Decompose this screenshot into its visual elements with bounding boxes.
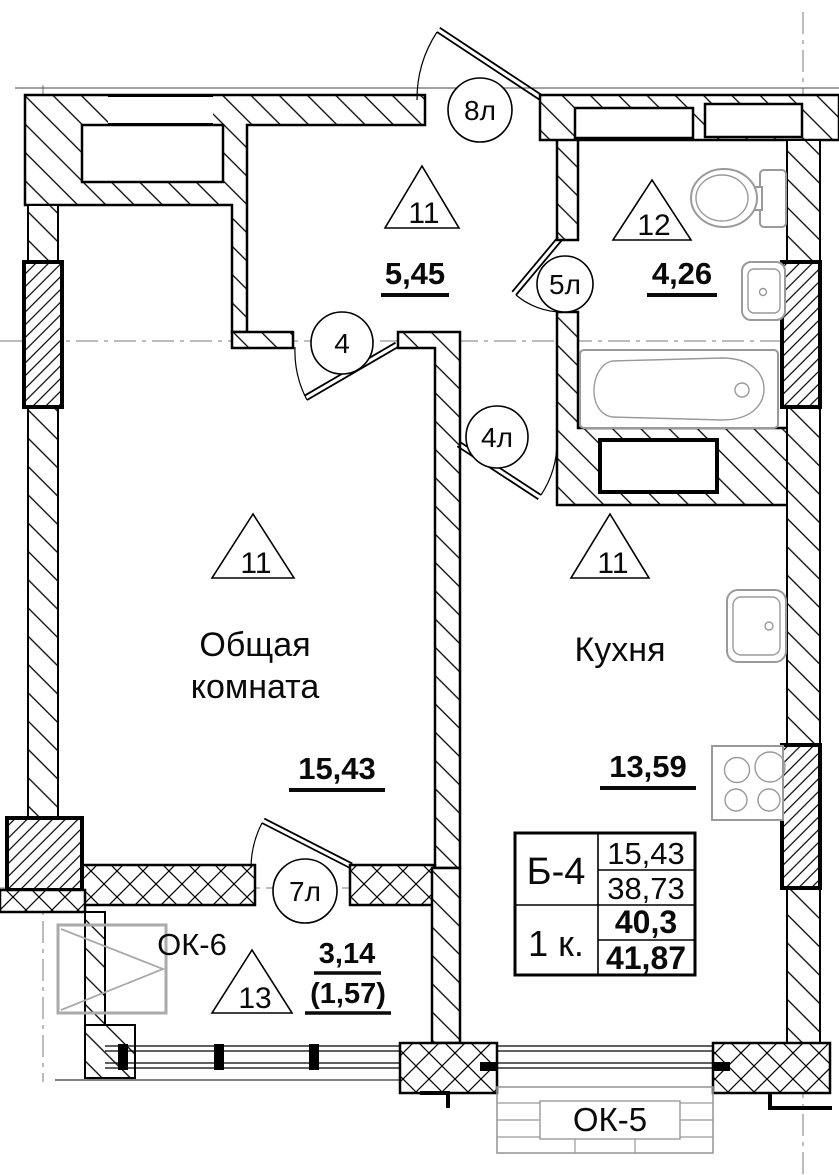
living-room-area: 15,43 [298,751,376,786]
wall-opening-top [108,97,213,124]
wall-step-bottom-left [420,1093,448,1108]
wall-bottom-right-of-door [350,865,435,905]
wall-loggia-kitchen [432,868,460,1043]
vent-shaft-niche [600,440,717,492]
zone-number-living: 11 [240,547,271,580]
column-right-lower [782,745,820,888]
walls [0,95,839,1108]
kitchen-sink [727,590,786,662]
table-living-area: 15,43 [607,836,685,871]
living-room-name-line2: комната [191,668,320,706]
kitchen-area: 13,59 [609,749,687,784]
loggia-area-coeff: (1,57) [310,978,386,1010]
door-label-kitchen: 4л [481,422,513,453]
floor-plan: 8л 4 4л 5л 7л 11 12 11 11 13 5,45 4,26 О… [0,0,839,1175]
apartment-info-table: Б-4 1 к. 15,43 38,73 40,3 41,87 [515,833,695,976]
table-sum-area: 38,73 [607,871,685,906]
loggia-area: 3,14 [319,938,375,970]
window-end-bar [713,1062,730,1071]
wall-central [398,332,460,868]
hall-area: 5,45 [385,256,445,291]
living-room-name-line1: Общая [199,626,310,664]
wall-below-column [0,890,85,912]
loggia-window-label: ОК-6 [157,927,227,962]
wall-step-bottom-right [770,1093,832,1108]
wall-living-door-left [232,332,293,348]
bathroom-sink [742,262,785,320]
wall-niche-top-right-2 [705,104,802,137]
column-bottom-left [7,818,82,890]
zone-number-loggia: 13 [238,982,271,1015]
wall-bottom-left-of-door [70,865,255,905]
stove [712,746,785,820]
column-left-upper [24,262,62,407]
toilet [691,169,786,227]
glazing-mullion [214,1044,224,1070]
wall-kitchen-window-right [713,1043,830,1093]
bathtub [580,350,778,428]
loggia-window-symbol [58,925,166,1013]
door-label-living: 4 [334,328,350,359]
zone-number-bathroom: 12 [637,209,670,242]
wall-niche-top-right-1 [575,108,693,138]
table-unit-type: Б-4 [527,851,586,893]
glazing-mullion [309,1044,319,1070]
kitchen-window-glazing [480,1046,730,1071]
table-total-area: 40,3 [615,904,677,940]
kitchen-name: Кухня [575,631,666,669]
zone-number-kitchen: 11 [597,547,628,580]
wall-loggia-left [85,912,105,1043]
window-end-bar [480,1062,497,1071]
column-right-upper [782,262,820,407]
door-label-loggia: 7л [289,876,321,907]
kitchen-window-label: ОК-5 [573,1101,647,1138]
wall-niche-hall [82,125,223,182]
zone-number-hall: 11 [408,197,439,230]
table-rooms-count: 1 к. [528,923,584,964]
bathroom-area: 4,26 [652,256,712,291]
door-label-bathroom: 5л [549,269,581,300]
door-label-entrance: 8л [464,95,496,126]
table-total-with-balcony: 41,87 [606,940,686,976]
glazing-mullion [118,1044,128,1070]
